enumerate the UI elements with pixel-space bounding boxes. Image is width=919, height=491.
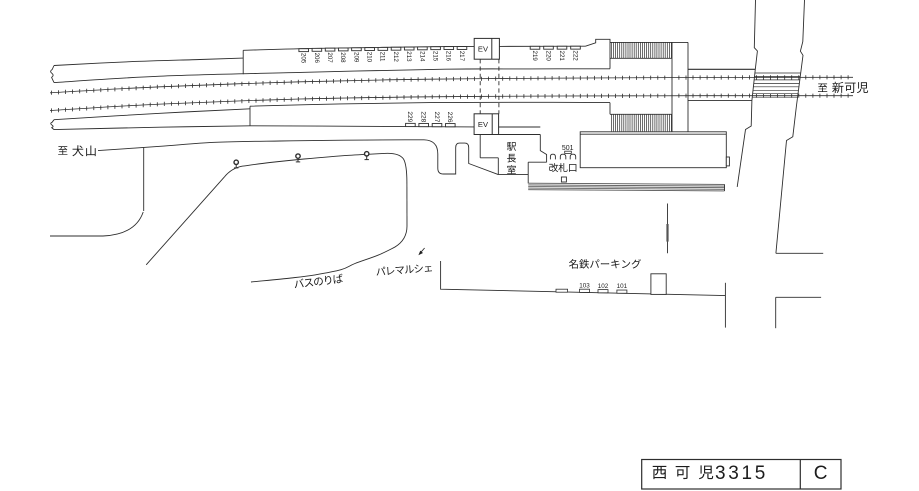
svg-text:227: 227 [433,112,440,123]
svg-text:3315: 3315 [715,463,768,484]
svg-text:229: 229 [406,111,413,122]
svg-text:212: 212 [392,52,399,63]
svg-text:221: 221 [558,51,565,62]
svg-text:214: 214 [418,51,425,62]
svg-text:206: 206 [313,53,320,64]
svg-text:103: 103 [579,282,590,289]
svg-text:EV: EV [478,120,489,129]
svg-text:217: 217 [458,51,465,62]
svg-text:228: 228 [420,111,427,122]
svg-text:220: 220 [544,51,551,62]
svg-text:EV: EV [478,45,489,54]
svg-text:213: 213 [405,51,412,62]
svg-text:211: 211 [379,52,386,62]
svg-text:101: 101 [617,283,628,290]
svg-text:207: 207 [326,52,333,63]
svg-text:215: 215 [432,51,439,62]
svg-text:210: 210 [366,52,373,63]
svg-text:205: 205 [300,53,307,64]
svg-text:216: 216 [445,51,452,62]
svg-text:226: 226 [446,112,453,123]
svg-text:102: 102 [598,283,609,290]
svg-text:209: 209 [352,52,359,63]
svg-text:C: C [814,463,828,484]
svg-text:501: 501 [562,145,574,152]
svg-text:222: 222 [571,50,578,61]
svg-text:208: 208 [339,52,346,63]
svg-text:219: 219 [531,51,538,62]
